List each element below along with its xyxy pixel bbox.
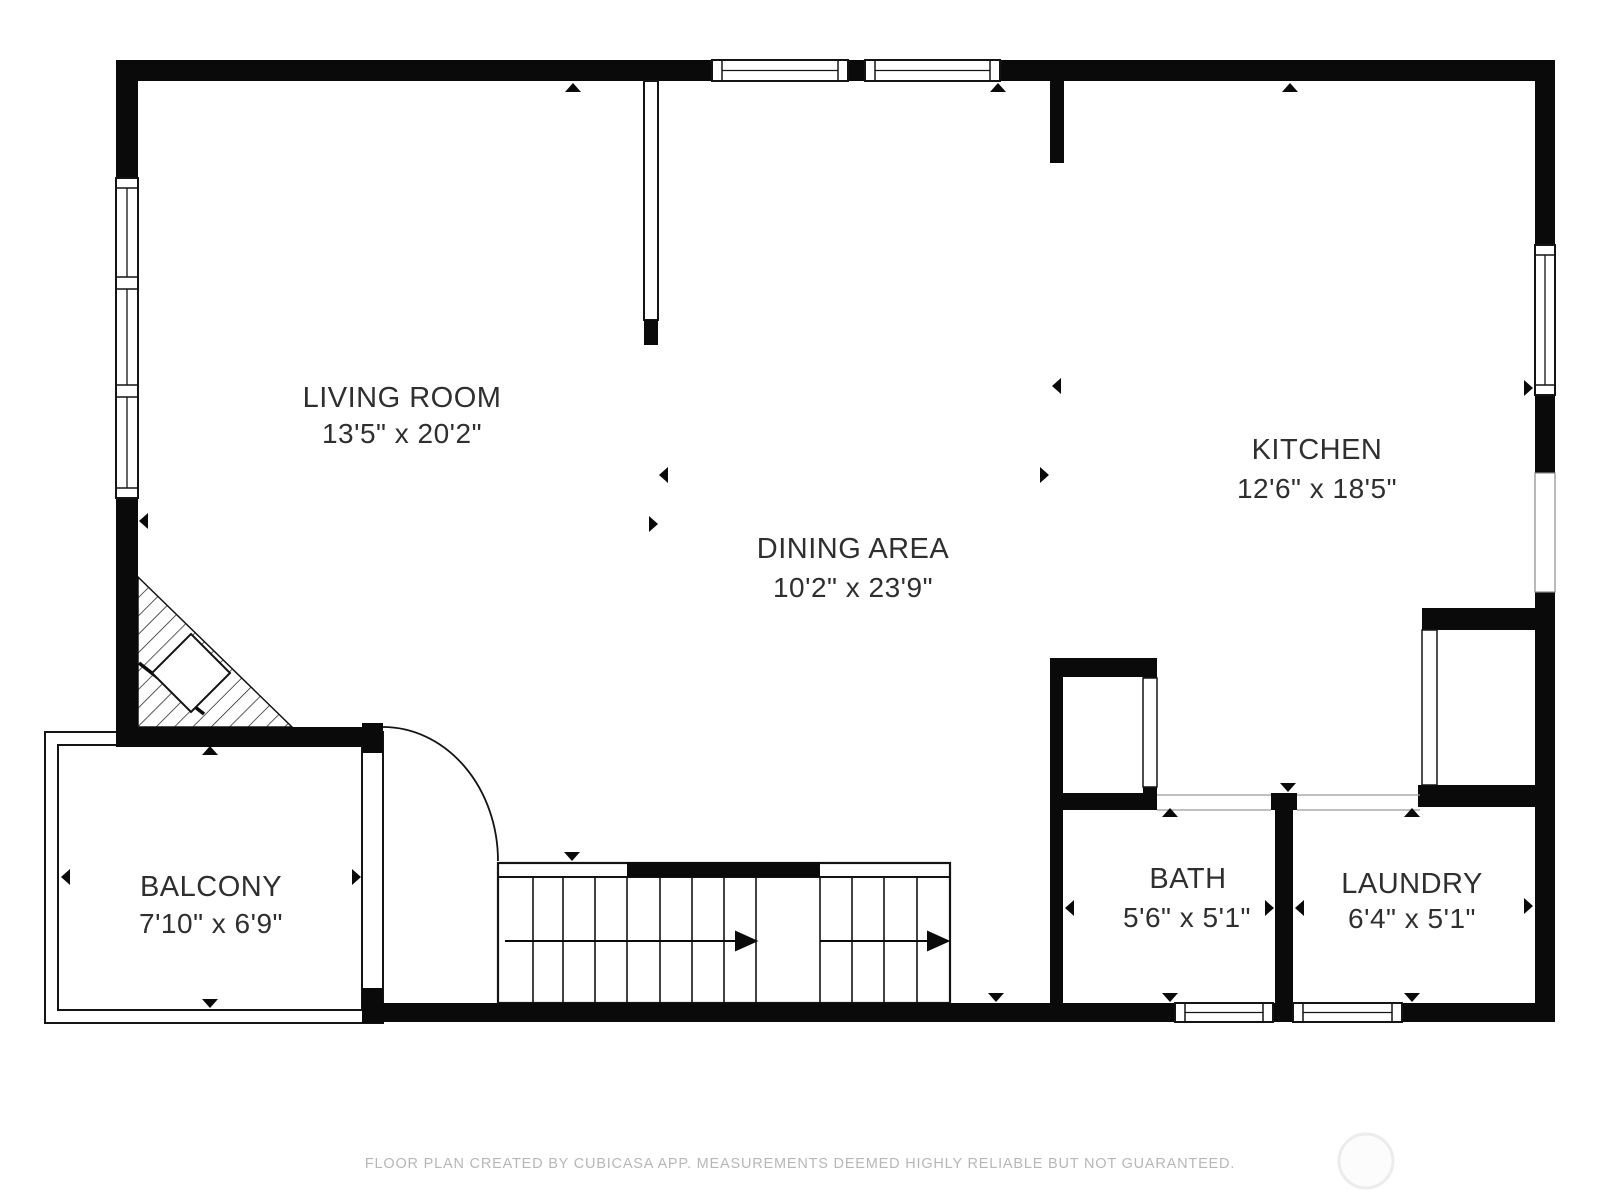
arrow-dining-top [990, 83, 1006, 92]
living-room-name: LIVING ROOM [303, 382, 502, 414]
closet-a-door-rail [1143, 678, 1157, 787]
cubicasa-watermark-icon [1339, 1134, 1393, 1188]
arrow-bath-right [1265, 900, 1274, 916]
dining-area-dimensions: 10'2" x 23'9" [773, 572, 933, 603]
wall-bath-left [1050, 660, 1063, 1013]
kitchen-dimensions: 12'6" x 18'5" [1237, 473, 1397, 504]
window-top-right [865, 60, 1000, 81]
floor-plan-page: LIVING ROOM 13'5" x 20'2" DINING AREA 10… [0, 0, 1600, 1200]
curved-wall-arc [383, 727, 498, 861]
wall-bath-laundry-cap [1271, 793, 1297, 810]
room-label-kitchen: KITCHEN 12'6" x 18'5" [1237, 434, 1397, 504]
wall-left-upper [116, 60, 138, 178]
wall-right-upper [1535, 60, 1555, 245]
balcony-dimensions: 7'10" x 6'9" [139, 908, 283, 939]
arrow-dining-left [659, 467, 668, 483]
kitchen-name: KITCHEN [1252, 434, 1383, 466]
opening-right-wall-slider [1535, 473, 1555, 592]
fireplace [138, 577, 292, 727]
wall-bath-laundry-divider [1275, 808, 1293, 1022]
room-label-living-room: LIVING ROOM 13'5" x 20'2" [303, 382, 502, 449]
arrow-dining-right [1040, 467, 1049, 483]
staircase [498, 862, 950, 1003]
closet-a-top-wall [1050, 658, 1157, 677]
laundry-name: LAUNDRY [1341, 868, 1483, 900]
bath-name: BATH [1149, 863, 1226, 895]
closet-a-bottom-wall [1050, 793, 1157, 810]
footer-disclaimer: FLOOR PLAN CREATED BY CUBICASA APP. MEAS… [365, 1156, 1235, 1172]
dining-area-name: DINING AREA [757, 533, 950, 565]
room-label-laundry: LAUNDRY 6'4" x 5'1" [1341, 868, 1483, 934]
arrow-living-top [565, 83, 581, 92]
arrow-balcony-left [61, 869, 70, 885]
floor-plan-drawing: LIVING ROOM 13'5" x 20'2" DINING AREA 10… [0, 0, 1600, 1200]
wall-right-lower [1535, 592, 1555, 1022]
wall-right-middle [1535, 395, 1555, 473]
arrow-laundry-bottom [1404, 993, 1420, 1002]
room-label-balcony: BALCONY 7'10" x 6'9" [139, 871, 283, 939]
arrow-balcony-right [352, 869, 361, 885]
arrow-hall-down [1280, 783, 1296, 792]
arrow-bath-bottom [1162, 993, 1178, 1002]
arrow-kitchen-top [1282, 83, 1298, 92]
arrow-living-left [139, 513, 148, 529]
wall-stub-dining-kitchen [1050, 81, 1064, 163]
room-label-dining-area: DINING AREA 10'2" x 23'9" [757, 533, 950, 603]
arrow-balcony-bottom [202, 999, 218, 1008]
openings [1143, 473, 1555, 810]
arrow-bath-left [1065, 900, 1074, 916]
window-top-left [712, 60, 848, 81]
bath-dimensions: 5'6" x 5'1" [1123, 902, 1251, 933]
arrow-kitchen-left [1052, 378, 1061, 394]
arrow-living-right [649, 516, 658, 532]
arrow-bath-top [1162, 808, 1178, 817]
arrow-kitchen-right [1524, 380, 1533, 396]
balcony-door-jamb-top [362, 723, 383, 753]
closet-b-top-wall [1422, 608, 1535, 630]
arrow-stairs-top [564, 852, 580, 861]
arrow-laundry-left [1295, 900, 1304, 916]
laundry-dimensions: 6'4" x 5'1" [1348, 903, 1476, 934]
window-bottom-laundry [1293, 1003, 1402, 1022]
window-left-wall [116, 178, 138, 498]
arrow-balcony-top [202, 746, 218, 755]
arrow-laundry-right [1524, 898, 1533, 914]
wall-left-lower [116, 498, 138, 747]
partition-living-dining [644, 81, 658, 345]
closet-b-bottom-wall [1418, 785, 1535, 807]
balcony-name: BALCONY [140, 871, 282, 903]
stairs-top-wall-segment [627, 862, 820, 877]
room-label-bath: BATH 5'6" x 5'1" [1123, 863, 1251, 933]
living-room-dimensions: 13'5" x 20'2" [322, 418, 482, 449]
closet-b-door-rail [1422, 630, 1437, 785]
window-right-wall [1535, 245, 1555, 395]
window-bottom-bath [1175, 1003, 1273, 1022]
wall-living-bottom [116, 727, 362, 747]
arrow-dining-bottom [988, 993, 1004, 1002]
arrow-laundry-top [1404, 808, 1420, 817]
